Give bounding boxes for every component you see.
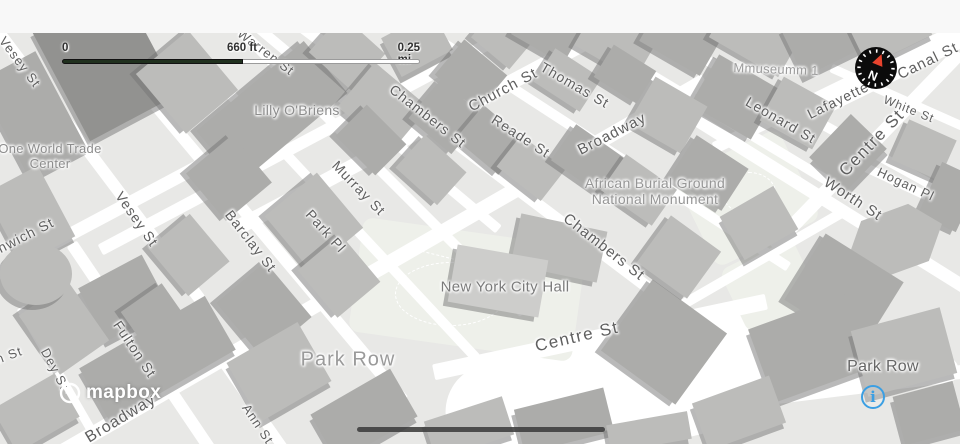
- scale-track: [62, 59, 420, 64]
- street-label-partial: n St: [0, 343, 24, 366]
- place-label-lilly-obriens: Lilly O'Briens: [227, 102, 367, 118]
- scale-zero-label: 0: [62, 42, 68, 54]
- street-label-park-pl: Park Pl: [303, 206, 350, 255]
- map-labels: Vesey St Warren St Church St Thomas St C…: [0, 0, 960, 444]
- mapbox-logo-text: mapbox: [86, 382, 161, 404]
- street-label-leonard-st: Leonard St: [743, 93, 819, 146]
- street-label-chambers-st-upper: Chambers St: [387, 81, 470, 151]
- street-label-greenwich-st: Greenwich St: [0, 214, 56, 272]
- place-label-park-row-left: Park Row: [278, 349, 418, 372]
- place-label-park-row-right: Park Row: [823, 358, 943, 376]
- street-label-murray-st: Murray St: [329, 157, 389, 218]
- place-label-new-york-city-hall: New York City Hall: [415, 278, 595, 295]
- info-icon: i: [870, 390, 876, 405]
- street-label-canal-st: Canal St: [895, 39, 960, 83]
- scale-bar: 0 660 ft 0.25 mi: [62, 42, 420, 66]
- street-label-hogan-pl: Hogan Pl: [875, 164, 937, 204]
- street-label-broadway-upper: Broadway: [575, 109, 649, 158]
- street-label-ann-st: Ann St: [239, 401, 277, 444]
- compass-icon: N: [854, 46, 898, 90]
- status-bar: [0, 0, 960, 33]
- scale-fill: [62, 59, 243, 64]
- street-label-centre-st-upper: Centre St: [835, 105, 909, 180]
- attribution-info-button[interactable]: i: [861, 385, 885, 409]
- home-indicator[interactable]: [357, 427, 605, 432]
- street-label-vesey-st-nw: Vesey St: [0, 34, 44, 90]
- street-label-worth-st: Worth St: [821, 174, 886, 224]
- street-label-centre-st-lower: Centre St: [533, 318, 621, 357]
- place-label-one-world-trade-center: One World Trade Center: [0, 142, 110, 172]
- street-label-church-st: Church St: [466, 65, 541, 116]
- compass-button[interactable]: N: [854, 46, 898, 90]
- place-label-mmuseumm: Mmuseumm 1: [716, 60, 836, 79]
- street-label-chambers-st-lower: Chambers St: [560, 210, 648, 284]
- street-label-vesey-st: Vesey St: [112, 188, 161, 249]
- place-label-african-burial-ground: African Burial Ground National Monument: [575, 175, 735, 207]
- street-label-thomas-st: Thomas St: [538, 59, 612, 111]
- map-canvas[interactable]: Vesey St Warren St Church St Thomas St C…: [0, 0, 960, 444]
- scale-primary-label: 660 ft: [227, 42, 257, 54]
- street-label-reade-st: Reade St: [489, 111, 553, 161]
- mapbox-logo-icon: [59, 382, 81, 404]
- street-label-fulton-st: Fulton St: [110, 318, 160, 381]
- mapbox-attribution-logo[interactable]: mapbox: [59, 382, 161, 404]
- street-label-barclay-st: Barclay St: [222, 207, 280, 275]
